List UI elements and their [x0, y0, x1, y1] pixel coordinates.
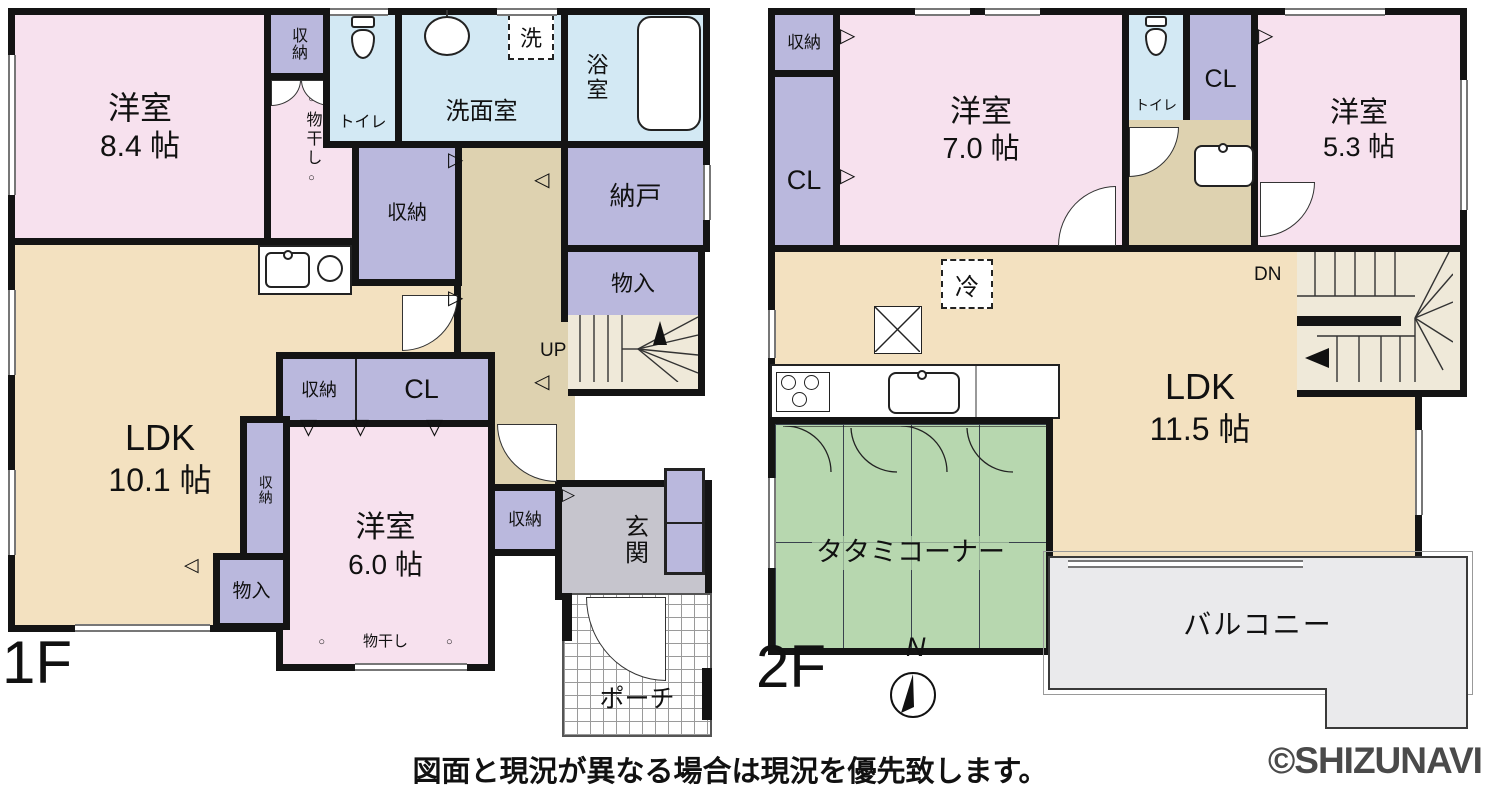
door-marker: ▷	[448, 288, 463, 308]
drying-hook-icon: ○	[308, 172, 315, 186]
room-1f-yoshitsu-6-0: 洋室 6.0 帖 ○ 物干し ○	[276, 420, 495, 671]
closet-label: 物入	[611, 270, 655, 298]
faucet-icon	[1218, 143, 1228, 153]
burner-icon	[804, 375, 819, 390]
door-marker: ▽	[300, 416, 317, 438]
porch-wall-stub	[562, 593, 572, 641]
door-marker: ▷	[840, 26, 855, 46]
stairs-dn-label: DN	[1254, 264, 1281, 286]
storeroom-1f: 納戸	[561, 141, 710, 252]
room-label: 洋室	[1330, 95, 1388, 131]
cl-label: CL	[787, 164, 822, 198]
staircase-1f	[568, 315, 705, 396]
ldk-label-block: LDK 10.1 帖	[60, 415, 260, 500]
genkan-label: 玄関	[619, 514, 649, 566]
wash-basin-icon	[424, 16, 470, 56]
window	[768, 478, 776, 568]
window	[497, 8, 557, 16]
closet-1f-monoiri-b: 物入	[213, 553, 290, 630]
door-marker: ◁	[184, 556, 199, 575]
window	[355, 663, 467, 671]
shoe-cabinet-divider	[667, 522, 702, 524]
washer-space: 洗	[508, 14, 554, 60]
watermark: ©SHIZUNAVI	[1268, 740, 1482, 782]
cl-label: CL	[1205, 64, 1237, 95]
stairs-up-arrow	[653, 321, 667, 345]
closet-label: 収納	[387, 201, 427, 226]
window	[915, 8, 970, 16]
closet-1f-mid: 収納	[352, 141, 462, 286]
refrigerator-space: 冷	[941, 259, 993, 309]
window	[1415, 430, 1423, 515]
staircase-2f	[1297, 245, 1467, 397]
compass-icon	[884, 666, 942, 724]
door-marker: ◁	[534, 372, 549, 392]
washer-label: 洗	[520, 21, 542, 53]
closet-label: 収納	[287, 27, 307, 61]
door-marker: ◁	[534, 170, 549, 190]
ldk-label: LDK	[60, 415, 260, 460]
burner-icon	[792, 392, 807, 407]
refrigerator-label: 冷	[955, 267, 979, 302]
door-marker: ▷	[448, 150, 463, 170]
ldk-size: 10.1 帖	[60, 460, 260, 500]
door-marker: ▽	[426, 416, 443, 438]
sliding-window	[75, 624, 210, 632]
closet-2f-top: 収納	[768, 8, 840, 77]
drying-hook-icon: ○	[318, 636, 325, 650]
bathroom-label: 浴室	[582, 53, 610, 103]
room-size: 5.3 帖	[1323, 131, 1395, 165]
ldk-size: 11.5 帖	[1095, 409, 1305, 449]
burner-icon	[317, 255, 343, 282]
drying-row: ○ 物干し ○	[283, 633, 488, 652]
toilet-tank-icon	[351, 16, 375, 28]
ldk-label: LDK	[1095, 364, 1305, 409]
closet-label: 収納	[508, 509, 542, 530]
compass-north-label: N	[906, 632, 926, 663]
stairs-up-label: UP	[540, 340, 566, 362]
tatami-label: タタミコーナー	[812, 536, 1009, 570]
room-label: 洋室	[356, 509, 416, 547]
window	[8, 470, 16, 555]
stairs-dn-arrow	[1305, 348, 1329, 368]
counter-divider	[975, 366, 977, 417]
monohoshi-label: 物干し	[302, 111, 322, 168]
storeroom-label: 納戸	[609, 180, 661, 213]
drying-hook-icon: ○	[446, 636, 453, 650]
porch-wall-stub	[702, 668, 712, 720]
window	[1460, 80, 1468, 210]
window	[330, 8, 388, 16]
faucet-icon	[917, 370, 927, 380]
closet-1f-top: 収納	[264, 8, 330, 80]
door-marker: ▷	[1258, 26, 1273, 46]
toilet-label: トイレ	[338, 113, 386, 133]
floor-label-1f: 1F	[2, 628, 72, 697]
closet-2f-cl-left: CL	[768, 70, 840, 252]
balcony: バルコニー	[1048, 556, 1468, 690]
ldk-label-block: LDK 11.5 帖	[1095, 364, 1305, 449]
window	[768, 310, 776, 358]
balcony-label: バルコニー	[1183, 603, 1332, 643]
disclaimer-text: 図面と現況が異なる場合は現況を優先致します。	[385, 748, 1075, 788]
window	[703, 165, 711, 220]
floor-plan-canvas: 洋室 8.4 帖 ○ 物干し ○ 収納 トイレ 洗面室 洗 浴室 LDK 10.…	[0, 0, 1500, 788]
room-label: 洋室	[950, 93, 1012, 132]
window	[985, 8, 1040, 16]
closet-label: 収納	[256, 475, 274, 505]
closet-1f-vertical: 収納	[240, 416, 290, 564]
closet-label: 収納	[787, 32, 821, 53]
room-size: 6.0 帖	[348, 547, 423, 582]
tatami-corner: タタミコーナー	[768, 417, 1053, 655]
room-1f-yoshitsu-8-4: 洋室 8.4 帖	[8, 8, 272, 245]
closet-1f-monoiri-a: 物入	[561, 245, 705, 322]
balcony-sliding-door	[1068, 560, 1303, 568]
stairs-divider-wall	[1297, 316, 1401, 326]
faucet-icon	[283, 250, 293, 260]
burner-icon	[781, 375, 796, 390]
toilet-label: トイレ	[1135, 97, 1177, 115]
fusuma-arcs	[783, 426, 1047, 474]
shoe-cabinet	[664, 468, 705, 575]
balcony-extension	[1325, 688, 1468, 729]
room-size: 8.4 帖	[100, 128, 180, 166]
cl-label: CL	[355, 373, 488, 407]
closet-label: 収納	[283, 379, 355, 402]
door-marker: ▽	[352, 416, 369, 438]
toilet-tank-icon	[1145, 16, 1167, 27]
counter-x-box	[874, 306, 922, 354]
room-label: 洋室	[108, 88, 172, 128]
door-marker: ▷	[840, 166, 855, 186]
door-marker: ▷	[562, 486, 575, 503]
porch-label: ポーチ	[564, 679, 710, 715]
window	[8, 290, 16, 375]
floor-label-2f: 2F	[756, 632, 826, 701]
room-size: 7.0 帖	[942, 131, 1019, 167]
bathtub-icon	[637, 16, 701, 131]
closet-label: 物入	[232, 580, 270, 604]
washroom-label: 洗面室	[446, 97, 518, 127]
monohoshi-label: 物干し	[363, 633, 408, 652]
window	[1285, 8, 1385, 16]
window	[8, 55, 16, 195]
closet-genkan: 収納	[488, 484, 562, 556]
closet-divider	[355, 359, 357, 421]
